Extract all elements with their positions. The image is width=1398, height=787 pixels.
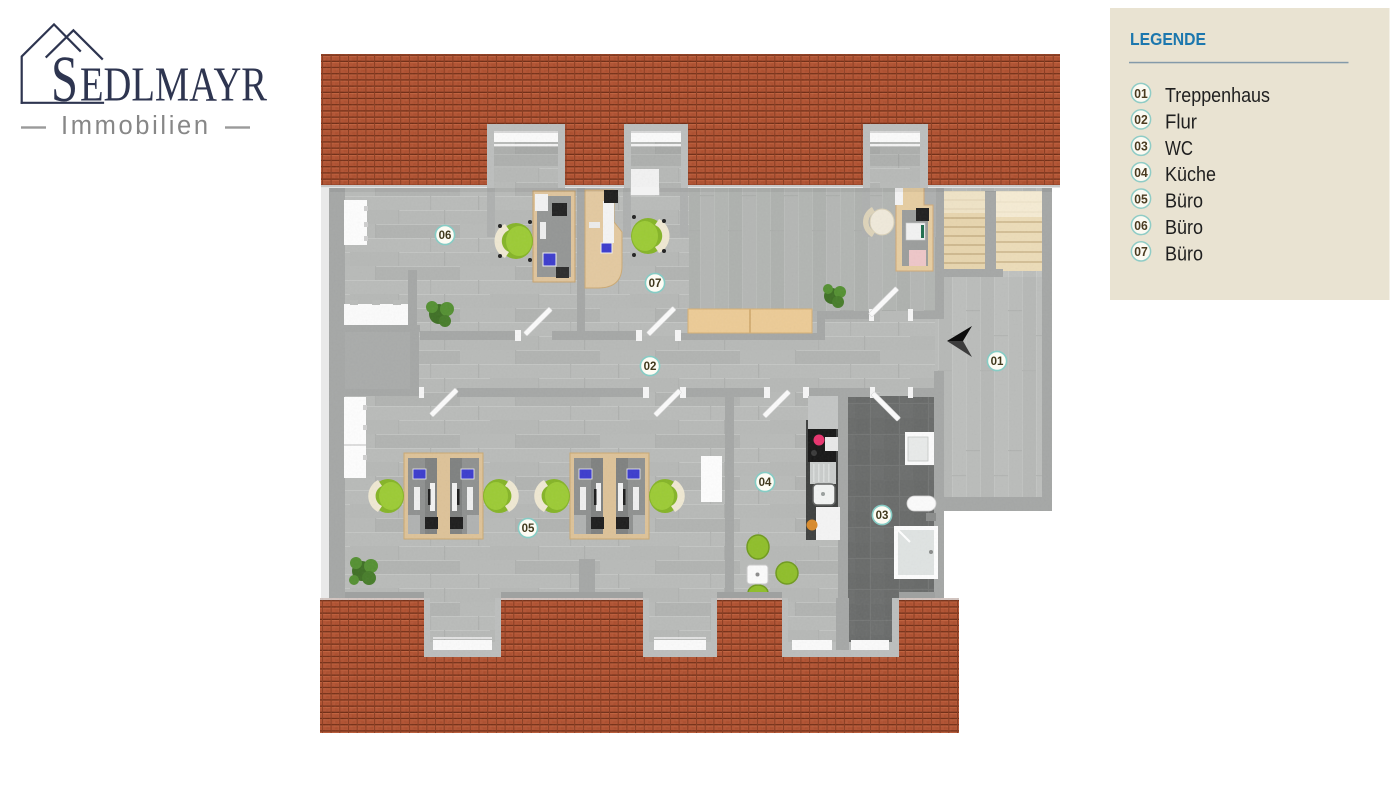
svg-text:01: 01: [1134, 86, 1148, 101]
svg-text:Büro: Büro: [1165, 191, 1203, 213]
svg-text:Immobilien: Immobilien: [61, 112, 211, 140]
svg-text:07: 07: [649, 278, 662, 290]
svg-text:Flur: Flur: [1165, 111, 1197, 133]
svg-text:02: 02: [644, 361, 657, 373]
svg-text:06: 06: [1134, 218, 1148, 233]
svg-text:Büro: Büro: [1165, 243, 1203, 265]
svg-text:07: 07: [1134, 244, 1148, 259]
svg-text:02: 02: [1134, 112, 1148, 127]
svg-text:03: 03: [876, 510, 889, 522]
svg-text:Büro: Büro: [1165, 217, 1203, 239]
svg-text:03: 03: [1134, 139, 1148, 154]
svg-text:Küche: Küche: [1165, 164, 1216, 186]
svg-text:04: 04: [759, 477, 772, 489]
svg-text:04: 04: [1134, 165, 1148, 180]
svg-text:Treppenhaus: Treppenhaus: [1165, 85, 1270, 107]
svg-text:LEGENDE: LEGENDE: [1130, 29, 1206, 49]
svg-text:05: 05: [1134, 191, 1148, 206]
svg-text:01: 01: [991, 356, 1004, 368]
svg-text:05: 05: [522, 523, 535, 535]
svg-text:WC: WC: [1165, 138, 1193, 160]
svg-text:EDLMAYR: EDLMAYR: [80, 57, 267, 112]
svg-text:06: 06: [439, 230, 452, 242]
svg-text:S: S: [51, 43, 78, 116]
